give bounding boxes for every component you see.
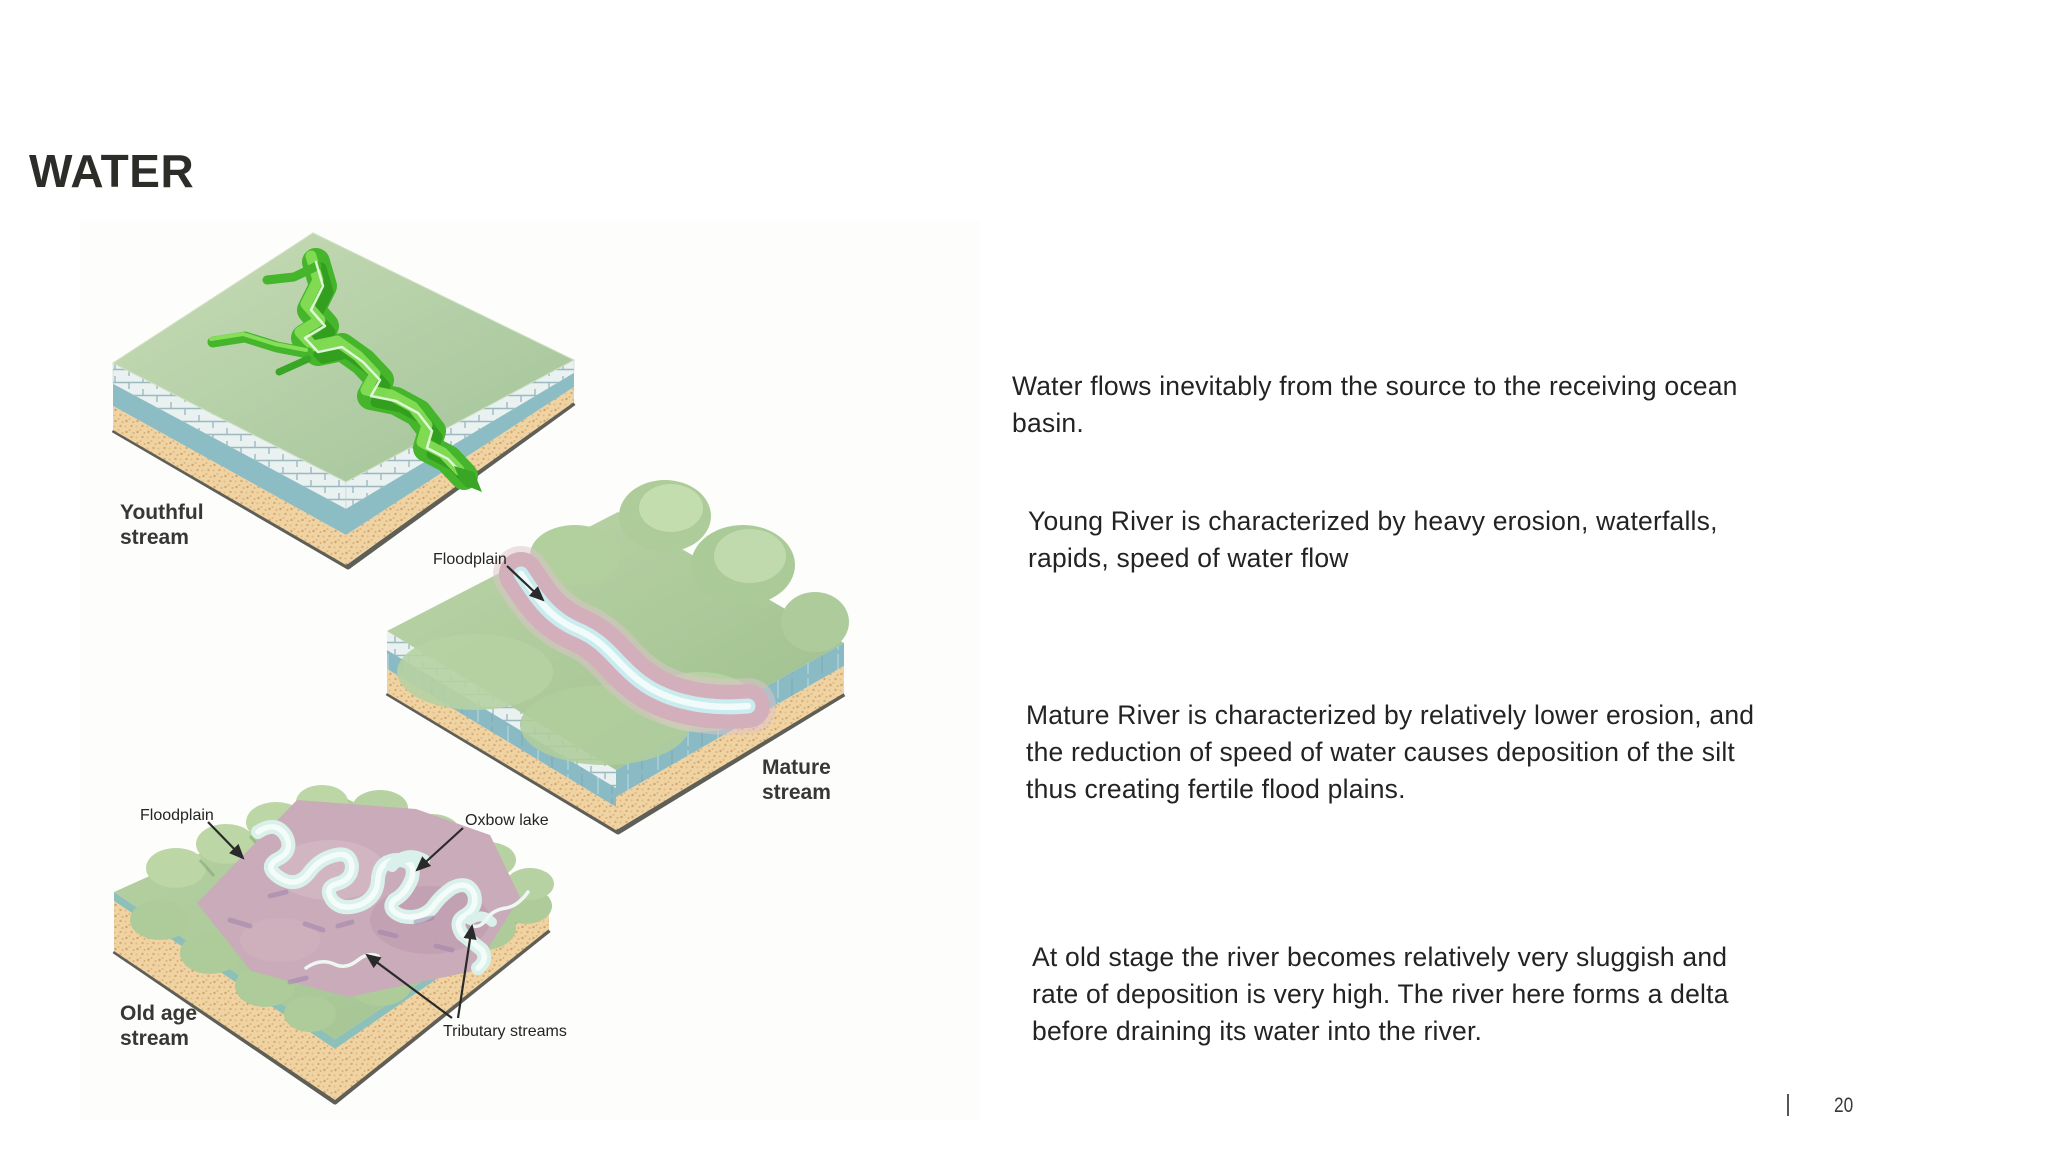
label-floodplain-mature: Floodplain	[433, 551, 507, 568]
paragraph-mature-river: Mature River is characterized by relativ…	[1026, 697, 1906, 808]
label-oxbow-lake: Oxbow lake	[465, 812, 549, 829]
label-tributary-streams: Tributary streams	[443, 1023, 567, 1040]
page-title: WATER	[29, 144, 194, 198]
page-number: 20	[1834, 1094, 1853, 1118]
river-stages-diagram: Youthful stream Mature stream Old age st…	[80, 220, 980, 1120]
slide-canvas: WATER Water flows inevitably from the so…	[0, 0, 2048, 1152]
paragraph-old-stage: At old stage the river becomes relativel…	[1032, 939, 1892, 1050]
paragraph-intro: Water flows inevitably from the source t…	[1012, 368, 1872, 442]
label-youthful-stream: Youthful	[120, 501, 204, 524]
svg-text:stream: stream	[120, 1027, 189, 1050]
label-floodplain-old: Floodplain	[140, 807, 214, 824]
svg-text:stream: stream	[762, 781, 831, 804]
footer-separator: |	[1785, 1090, 1791, 1117]
svg-text:stream: stream	[120, 526, 189, 549]
paragraph-young-river: Young River is characterized by heavy er…	[1028, 503, 1888, 577]
label-old-age-stream: Old age	[120, 1002, 197, 1025]
label-mature-stream: Mature	[762, 756, 831, 779]
